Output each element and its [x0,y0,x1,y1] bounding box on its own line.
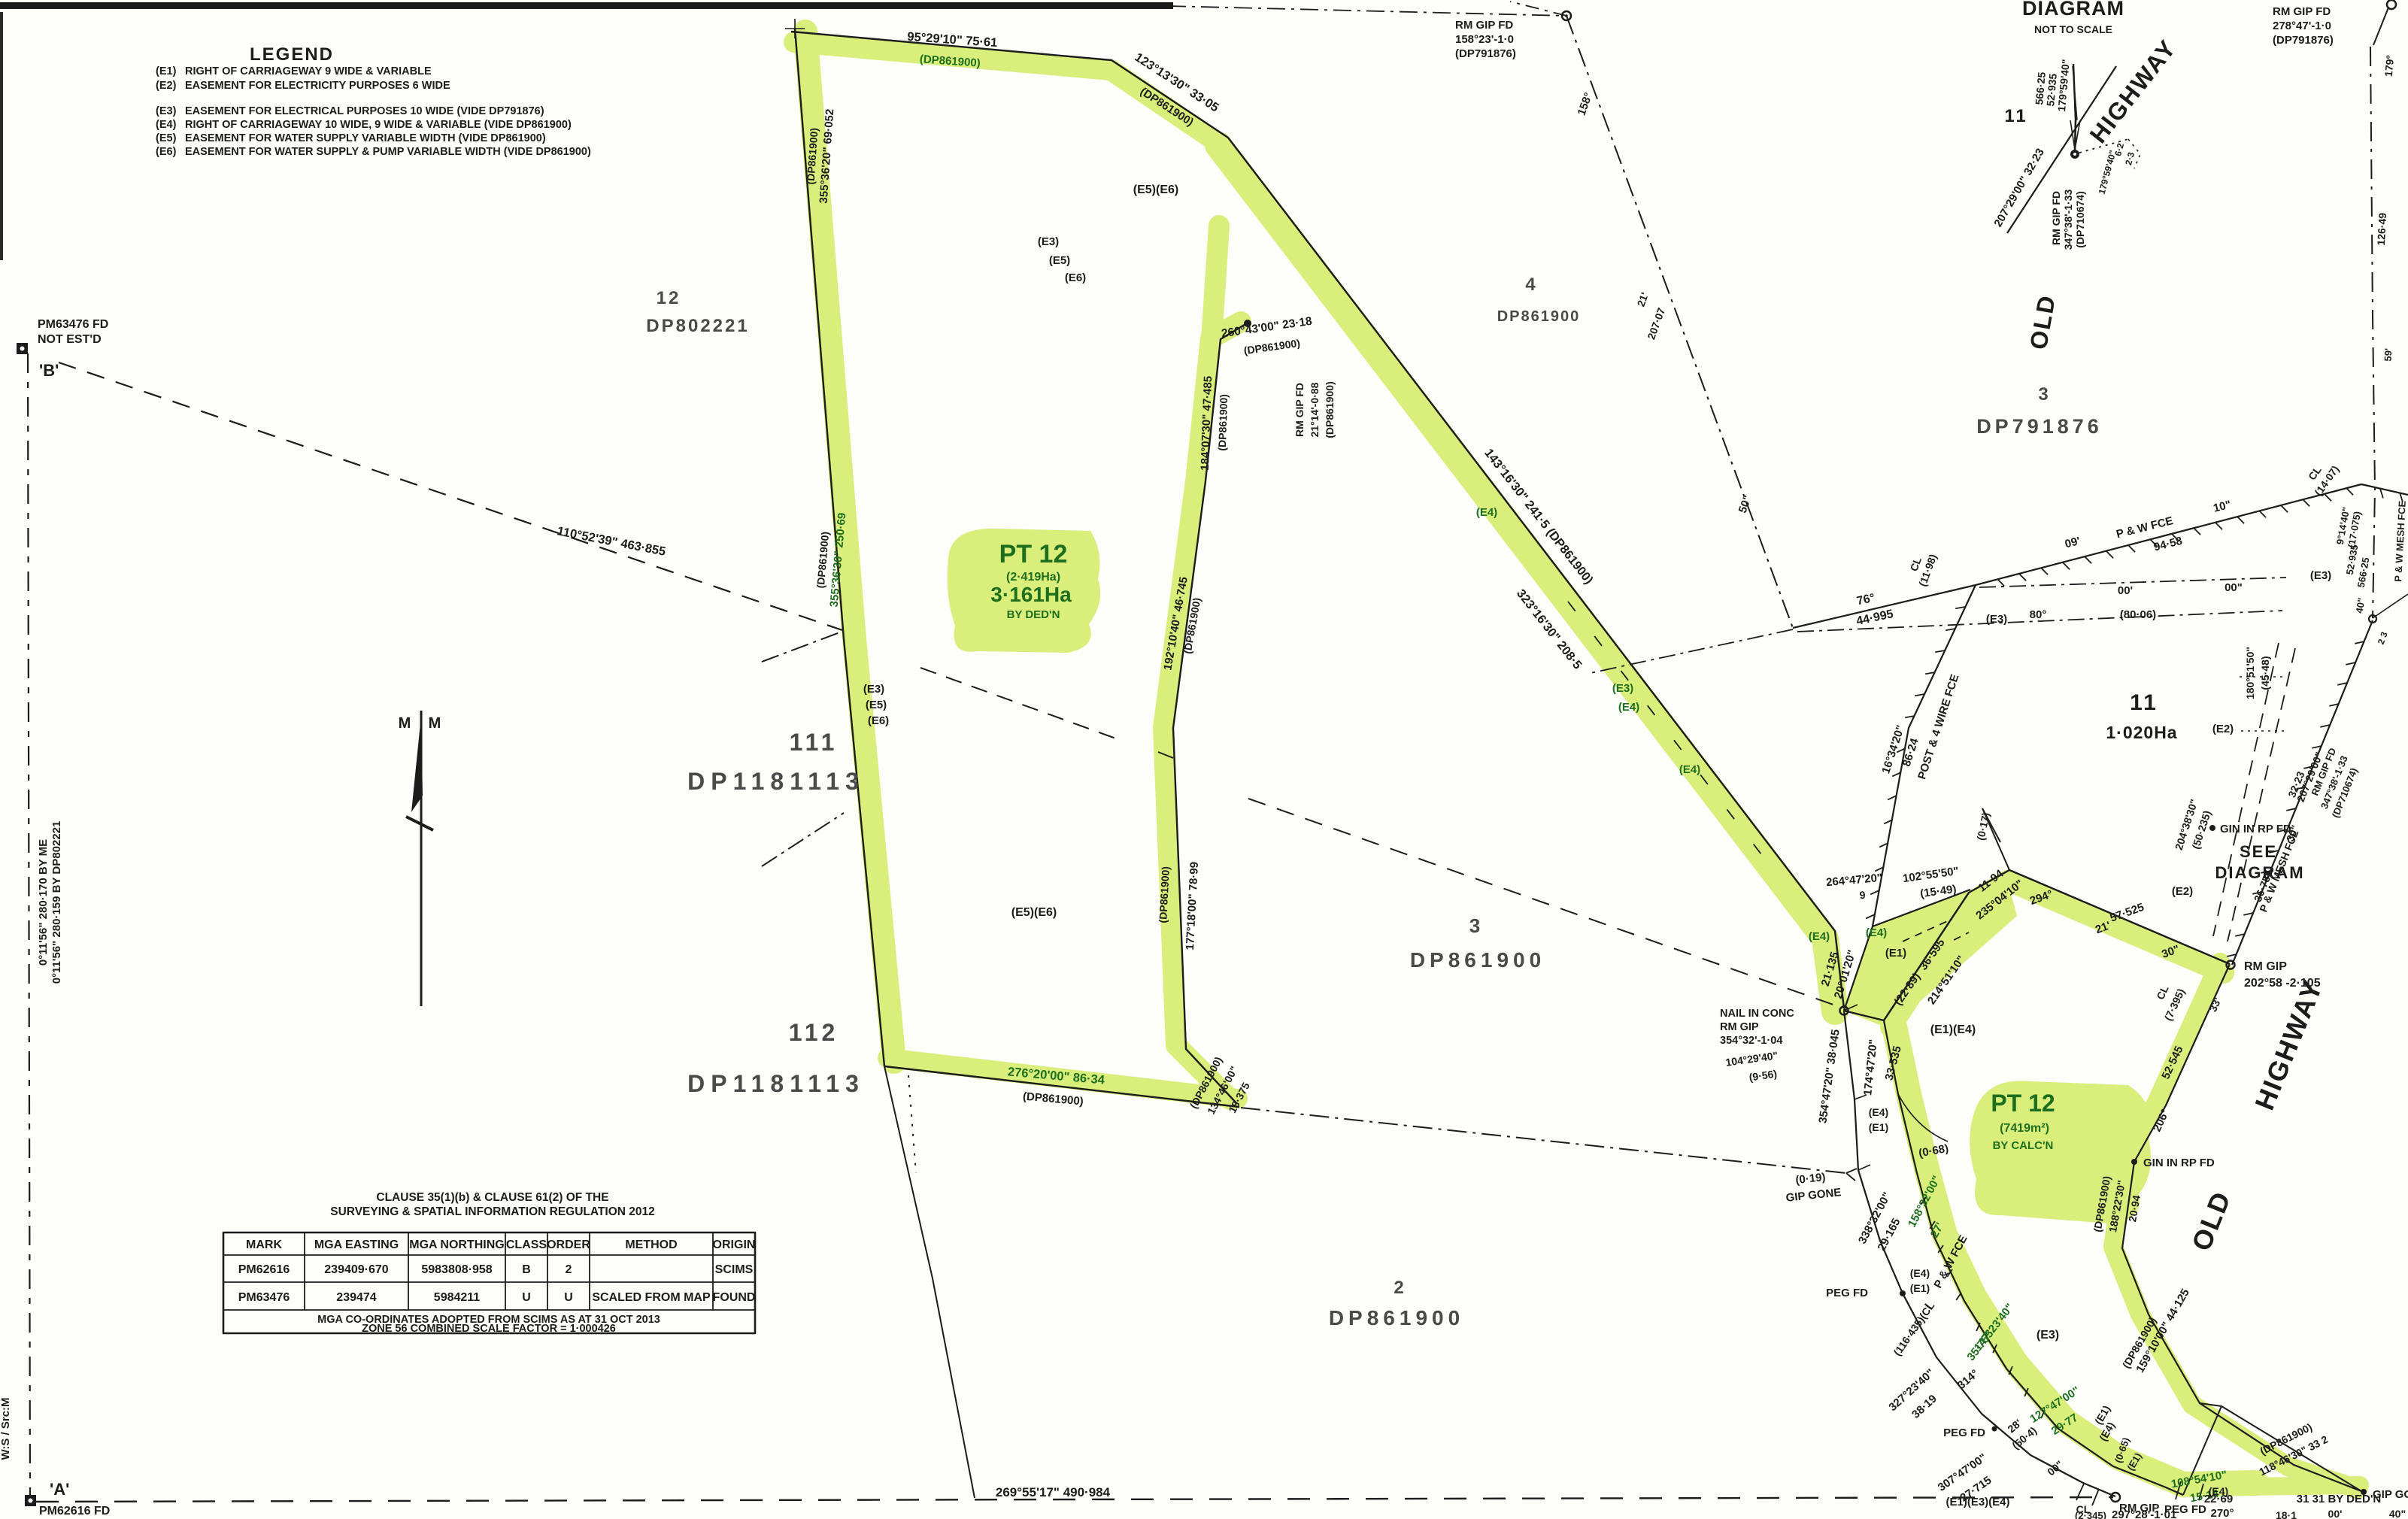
svg-text:(E6): (E6) [1065,271,1086,284]
svg-text:(E3): (E3) [1986,613,2007,626]
svg-text:RM GIP FD: RM GIP FD [2050,191,2062,245]
svg-text:179°: 179° [2382,54,2396,77]
svg-text:(E5): (E5) [866,699,887,711]
svg-text:NOT TO SCALE: NOT TO SCALE [2034,23,2112,35]
svg-text:PEG FD: PEG FD [1943,1427,1985,1439]
svg-text:RM GIP: RM GIP [1720,1021,1759,1033]
svg-text:DP861900: DP861900 [1497,308,1581,325]
svg-text:1·020Ha: 1·020Ha [2106,723,2177,742]
svg-text:LEGEND: LEGEND [250,44,334,65]
svg-text:PM62616 FD: PM62616 FD [39,1505,110,1517]
svg-text:(E1)(E4): (E1)(E4) [1930,1023,1976,1036]
svg-text:RM GIP: RM GIP [2244,960,2287,973]
svg-text:0°11'56" 280·159 BY DP802221: 0°11'56" 280·159 BY DP802221 [50,821,63,984]
svg-text:(E6): (E6) [156,146,177,158]
svg-text:(E1)(E3)(E4): (E1)(E3)(E4) [1946,1496,2009,1508]
svg-text:NOT EST'D: NOT EST'D [38,333,102,346]
svg-text:(2·345): (2·345) [2075,1510,2106,1519]
svg-text:(E6): (E6) [868,714,889,727]
svg-text:278°47'-1·0: 278°47'-1·0 [2273,20,2331,32]
svg-text:(E4): (E4) [1679,763,1700,776]
svg-text:MARK: MARK [246,1239,282,1251]
svg-text:21°14'-0·88: 21°14'-0·88 [1309,382,1321,437]
svg-text:(80·06): (80·06) [2120,608,2156,621]
svg-text:31 31 BY DED'N: 31 31 BY DED'N [2297,1493,2382,1505]
svg-text:11: 11 [2130,690,2158,715]
svg-text:B: B [522,1263,531,1276]
svg-text:ORDER: ORDER [547,1239,590,1251]
svg-text:(DP861900): (DP861900) [1324,381,1336,438]
svg-text:'B': 'B' [39,361,59,380]
svg-text:2: 2 [566,1263,572,1276]
svg-text:(E4): (E4) [1869,1106,1888,1118]
svg-text:(E3): (E3) [2036,1329,2059,1342]
svg-text:111: 111 [790,729,839,756]
svg-text:RM GIP FD: RM GIP FD [2273,5,2331,18]
svg-text:GIN IN RP FD: GIN IN RP FD [2220,823,2291,835]
svg-text:269°55'17" 490·984: 269°55'17" 490·984 [996,1485,1111,1499]
svg-text:METHOD: METHOD [625,1239,677,1251]
svg-text:M: M [429,715,441,732]
svg-text:M: M [399,715,411,732]
svg-text:(E3): (E3) [1038,235,1059,248]
svg-text:3: 3 [2038,384,2049,405]
svg-text:(E4): (E4) [2209,1485,2228,1497]
svg-text:112: 112 [789,1019,839,1046]
svg-text:SCIMS: SCIMS [715,1263,754,1276]
svg-text:DIAGRAM: DIAGRAM [2022,0,2124,20]
svg-text:EASEMENT FOR ELECTRICAL PURPOS: EASEMENT FOR ELECTRICAL PURPOSES 10 WIDE… [185,105,544,117]
svg-text:(E3): (E3) [863,683,884,696]
svg-text:(E2): (E2) [2172,885,2193,898]
svg-text:158°23'-1·0: 158°23'-1·0 [1455,33,1514,46]
svg-text:SEE: SEE [2240,842,2277,861]
svg-text:W:S / Src:M: W:S / Src:M [0,1397,12,1460]
svg-text:239474: 239474 [336,1291,376,1304]
svg-text:(DP791876): (DP791876) [2273,34,2334,47]
svg-text:(E4): (E4) [1809,930,1830,943]
svg-text:(E1): (E1) [1910,1282,1930,1294]
svg-text:(DP791876): (DP791876) [1455,47,1516,60]
svg-text:(7419m²): (7419m²) [2000,1122,2049,1135]
svg-text:18·1: 18·1 [2276,1509,2297,1519]
svg-text:12: 12 [657,288,681,308]
svg-text:3: 3 [1469,914,1481,937]
svg-text:80°: 80° [2030,608,2047,621]
svg-text:DP861900: DP861900 [1410,948,1545,972]
svg-text:(E3): (E3) [2310,569,2331,582]
svg-text:(E5): (E5) [156,132,177,144]
svg-text:FOUND: FOUND [713,1291,756,1304]
svg-text:DP791876: DP791876 [1976,415,2103,438]
svg-text:(E4): (E4) [156,119,177,131]
svg-text:RM GIP FD: RM GIP FD [1455,19,1513,32]
svg-text:MGA EASTING: MGA EASTING [314,1239,399,1251]
svg-text:(E5)(E6): (E5)(E6) [1011,906,1057,919]
svg-text:(E3): (E3) [156,105,177,117]
svg-text:(E1): (E1) [1885,947,1906,960]
svg-text:40": 40" [2389,1508,2406,1519]
svg-text:GIP GONE: GIP GONE [2373,1488,2408,1501]
svg-text:(DP710674): (DP710674) [2074,191,2086,248]
svg-text:180°51'50": 180°51'50" [2244,647,2256,699]
svg-text:DP1181113: DP1181113 [687,768,865,795]
svg-text:NAIL IN CONC: NAIL IN CONC [1720,1008,1794,1020]
svg-text:4: 4 [1525,274,1536,295]
svg-text:3·161Ha: 3·161Ha [990,583,1072,606]
svg-text:270°: 270° [2210,1507,2234,1519]
svg-text:(E5)(E6): (E5)(E6) [1133,183,1178,196]
svg-text:(E4): (E4) [1476,506,1497,519]
svg-text:PM63476 FD: PM63476 FD [38,318,108,331]
svg-text:SCALED FROM MAP: SCALED FROM MAP [592,1291,711,1304]
svg-text:(DP861900): (DP861900) [1216,394,1230,451]
svg-text:BY CALC'N: BY CALC'N [1993,1139,2054,1152]
svg-text:11: 11 [2004,106,2027,126]
svg-text:DP802221: DP802221 [646,316,749,336]
svg-text:DP861900: DP861900 [1329,1306,1464,1330]
svg-text:(E4): (E4) [1618,701,1639,714]
svg-text:347°38'-1·33: 347°38'-1·33 [2062,189,2074,250]
svg-text:0°11'56" 280·170 BY ME: 0°11'56" 280·170 BY ME [37,839,50,966]
svg-text:PEG FD: PEG FD [2164,1503,2206,1516]
svg-text:(E2): (E2) [156,80,177,92]
svg-text:5984211: 5984211 [434,1291,481,1304]
svg-text:9: 9 [1859,889,1866,902]
svg-text:EASEMENT FOR ELECTRICITY PURPO: EASEMENT FOR ELECTRICITY PURPOSES 6 WIDE [185,80,450,92]
svg-text:(E3): (E3) [1612,682,1633,695]
svg-text:PT 12: PT 12 [999,540,1068,568]
svg-text:RIGHT OF CARRIAGEWAY 10 WIDE,: RIGHT OF CARRIAGEWAY 10 WIDE, 9 WIDE & V… [185,119,572,131]
svg-text:00': 00' [2328,1508,2343,1519]
svg-text:5983808·958: 5983808·958 [421,1263,492,1276]
svg-text:CLAUSE 35(1)(b) & CLAUSE 61(2): CLAUSE 35(1)(b) & CLAUSE 61(2) OF THE [376,1191,608,1204]
svg-text:354°32'-1·04: 354°32'-1·04 [1720,1035,1782,1047]
svg-text:MGA NORTHING: MGA NORTHING [409,1239,505,1251]
svg-text:ZONE 56 COMBINED SCALE FACTOR: ZONE 56 COMBINED SCALE FACTOR = 1·000426 [362,1323,616,1335]
svg-text:U: U [522,1291,531,1304]
svg-text:EASEMENT FOR WATER SUPPLY & PU: EASEMENT FOR WATER SUPPLY & PUMP VARIABL… [185,146,591,158]
svg-text:(E2): (E2) [2212,723,2234,735]
svg-text:PM62616: PM62616 [238,1263,290,1276]
svg-text:PM63476: PM63476 [238,1291,290,1304]
svg-text:2: 2 [1394,1278,1405,1298]
svg-text:(E4): (E4) [1910,1267,1930,1279]
svg-text:(45·48): (45·48) [2259,656,2271,690]
svg-text:EASEMENT FOR WATER SUPPLY VARI: EASEMENT FOR WATER SUPPLY VARIABLE WIDTH… [185,132,546,144]
svg-text:239409·670: 239409·670 [324,1263,389,1276]
svg-text:(E1): (E1) [1869,1121,1888,1133]
svg-text:RIGHT OF CARRIAGEWAY 9 WIDE &: RIGHT OF CARRIAGEWAY 9 WIDE & VARIABLE [185,65,432,77]
svg-text:PT 12: PT 12 [1991,1090,2055,1117]
svg-text:CLASS: CLASS [506,1239,547,1251]
svg-text:00": 00" [2225,581,2243,594]
svg-text:DP1181113: DP1181113 [687,1070,865,1097]
svg-text:RM GIP FD: RM GIP FD [1293,383,1306,437]
svg-text:GIN IN RP FD: GIN IN RP FD [2143,1157,2215,1169]
svg-text:PEG FD: PEG FD [1826,1287,1868,1299]
svg-text:126·49: 126·49 [2375,212,2388,246]
svg-text:U: U [564,1291,573,1304]
svg-text:ORIGIN: ORIGIN [713,1239,756,1251]
svg-text:BY DED'N: BY DED'N [1007,608,1060,621]
svg-text:SURVEYING & SPATIAL INFORMATIO: SURVEYING & SPATIAL INFORMATION REGULATI… [330,1205,654,1218]
svg-text:(E5): (E5) [1049,254,1070,267]
svg-text:00': 00' [2118,584,2133,597]
svg-text:(E1): (E1) [156,65,177,77]
svg-text:'A': 'A' [50,1480,69,1499]
svg-text:(2·419Ha): (2·419Ha) [1006,571,1060,584]
svg-text:59': 59' [2382,348,2394,362]
svg-text:(E4): (E4) [1866,926,1887,939]
